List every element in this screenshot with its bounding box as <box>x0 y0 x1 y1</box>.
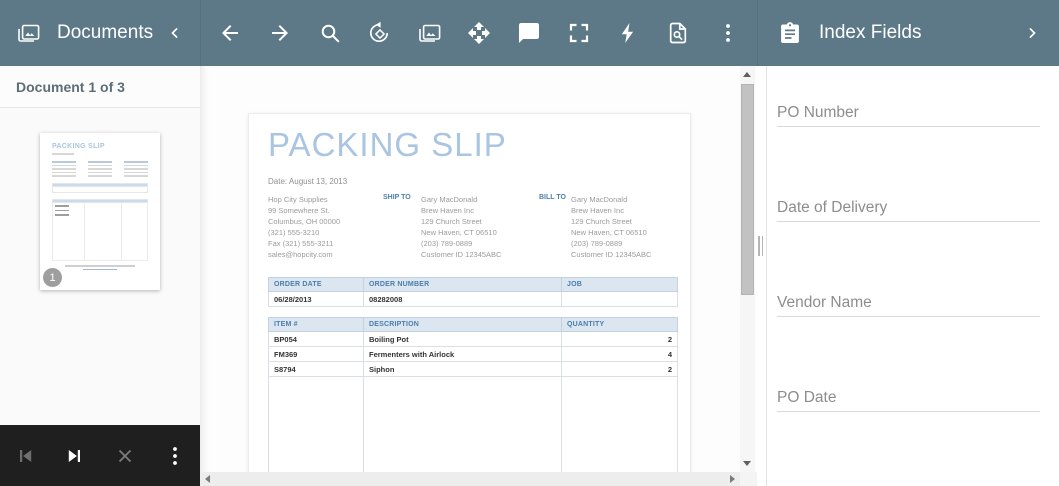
scroll-left-arrow[interactable] <box>205 475 210 483</box>
thumbnail-doc-title: PACKING SLIP <box>52 143 148 150</box>
table-row-empty <box>269 377 678 486</box>
document-counter: Document 1 of 3 <box>0 66 200 108</box>
photo-library-icon <box>15 20 41 46</box>
search-icon[interactable] <box>317 20 343 46</box>
po-date-field[interactable] <box>777 385 1040 412</box>
table-row: S8794 Siphon 2 <box>269 362 678 377</box>
photo-library-icon[interactable] <box>416 20 442 46</box>
thumbnail-footer-bars <box>52 265 148 270</box>
vendor-address-block: Hop City Supplies99 Somewhere St. Columb… <box>268 194 340 260</box>
bill-to-address-block: Gary MacDonaldBrew Haven Inc 129 Church … <box>571 194 651 260</box>
ship-to-label: SHIP TO <box>383 194 411 201</box>
find-in-page-icon[interactable] <box>665 20 691 46</box>
vertical-scrollbar[interactable] <box>740 66 755 472</box>
scroll-right-arrow[interactable] <box>730 475 735 483</box>
collapse-panel-chevron-right-icon[interactable] <box>1019 20 1045 46</box>
thumbnail-address-bars <box>52 161 148 179</box>
index-fields-panel-title: Index Fields <box>819 22 1019 44</box>
skip-next-icon[interactable] <box>62 443 88 469</box>
document-thumbnail[interactable]: PACKING SLIP 1 <box>40 133 160 290</box>
documents-panel-header: Documents <box>0 0 200 66</box>
packing-slip-date: Date: August 13, 2013 <box>268 177 347 186</box>
table-row: BP054 Boiling Pot 2 <box>269 332 678 347</box>
index-fields-panel-header: Index Fields <box>757 0 1059 66</box>
comment-icon[interactable] <box>516 20 542 46</box>
index-fields-panel <box>766 66 1059 486</box>
document-viewer: PACKING SLIP Date: August 13, 2013 Hop C… <box>200 66 757 486</box>
po-number-field[interactable] <box>777 100 1040 127</box>
panel-resize-divider[interactable] <box>757 66 766 486</box>
fullscreen-icon[interactable] <box>566 20 592 46</box>
clipboard-icon <box>777 20 803 46</box>
thumbnail-items-table <box>52 199 148 261</box>
more-vertical-icon[interactable] <box>715 20 741 46</box>
thumbnail-order-table <box>52 183 148 193</box>
arrow-back-icon[interactable] <box>217 20 243 46</box>
thumbnail-date-bar <box>52 153 148 157</box>
horizontal-scrollbar[interactable] <box>200 472 740 486</box>
thumbnail-page-badge: 1 <box>43 268 62 287</box>
scrollbar-corner <box>740 472 757 486</box>
date-of-delivery-field[interactable] <box>777 195 1040 222</box>
document-capture-app: Documents <box>0 0 1059 486</box>
table-row: 06/28/2013 08282008 <box>269 292 678 307</box>
panel-resize-handle[interactable] <box>758 236 763 256</box>
table-row: FM369 Fermenters with Airlock 4 <box>269 347 678 362</box>
vendor-name-field[interactable] <box>777 290 1040 317</box>
documents-panel-title: Documents <box>57 22 162 44</box>
more-vertical-icon[interactable] <box>162 443 188 469</box>
ship-to-address-block: Gary MacDonaldBrew Haven Inc 129 Church … <box>421 194 501 260</box>
bolt-icon[interactable] <box>615 20 641 46</box>
packing-slip-title: PACKING SLIP <box>268 126 507 164</box>
document-nav-toolbar <box>0 425 200 486</box>
skip-previous-icon[interactable] <box>12 443 38 469</box>
pan-move-icon[interactable] <box>466 20 492 46</box>
order-info-table: ORDER DATE ORDER NUMBER JOB 06/28/2013 0… <box>268 277 678 307</box>
scroll-up-arrow[interactable] <box>743 72 751 77</box>
collapse-panel-chevron-left-icon[interactable] <box>162 20 188 46</box>
document-page[interactable]: PACKING SLIP Date: August 13, 2013 Hop C… <box>248 113 691 486</box>
line-items-table: ITEM # DESCRIPTION QUANTITY BP054 Boilin… <box>268 317 678 486</box>
close-icon[interactable] <box>112 443 138 469</box>
vertical-scrollbar-thumb[interactable] <box>741 84 754 295</box>
bill-to-label: BILL TO <box>539 194 566 201</box>
scroll-down-arrow[interactable] <box>743 461 751 466</box>
arrow-forward-icon[interactable] <box>267 20 293 46</box>
viewer-toolbar <box>200 0 757 66</box>
documents-panel: Document 1 of 3 PACKING SLIP 1 <box>0 66 200 486</box>
rotate-icon[interactable] <box>366 20 392 46</box>
